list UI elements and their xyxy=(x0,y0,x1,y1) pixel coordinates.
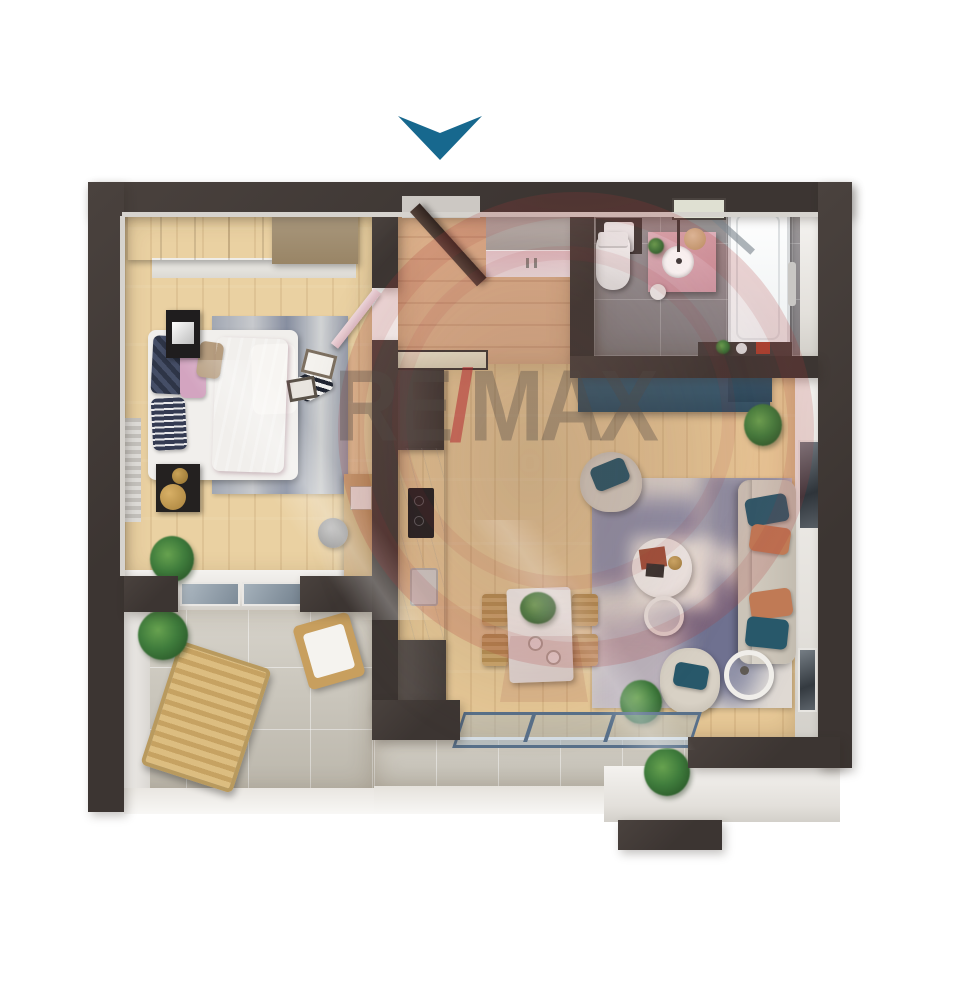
radiator-bedroom xyxy=(124,418,141,522)
bedroom-window-glass-2 xyxy=(242,582,302,606)
bathroom-sill-right xyxy=(800,216,818,356)
bedroom-window-glass-1 xyxy=(180,582,240,606)
wall-right xyxy=(818,182,852,768)
gold-tray-large xyxy=(160,484,186,510)
living-window-right-lower xyxy=(798,648,817,712)
watermark-max: MAX xyxy=(469,351,654,463)
floor-plan-canvas: RE/MAX xyxy=(0,0,960,986)
wall-left xyxy=(88,182,124,812)
gold-tray-small xyxy=(172,468,188,484)
remax-watermark-text: RE/MAX xyxy=(334,350,654,465)
step-platform xyxy=(604,766,840,822)
watermark-re: RE xyxy=(334,351,449,463)
remax-balloon-basket-watermark xyxy=(500,636,588,702)
wall-trim-left xyxy=(120,216,125,576)
step-front-wall xyxy=(618,820,722,850)
bed-blanket-pink xyxy=(212,337,289,473)
tv-screen xyxy=(172,322,194,344)
entrance-arrow-icon xyxy=(398,116,482,160)
balcony-plant xyxy=(138,610,188,660)
wall-bedroom-balcony-left xyxy=(124,576,178,612)
towel-rail xyxy=(788,262,796,306)
watermark-slash: / xyxy=(449,351,469,463)
balcony-parapet-bottom-left xyxy=(124,788,390,814)
bed-pillow-checkered xyxy=(151,397,188,451)
